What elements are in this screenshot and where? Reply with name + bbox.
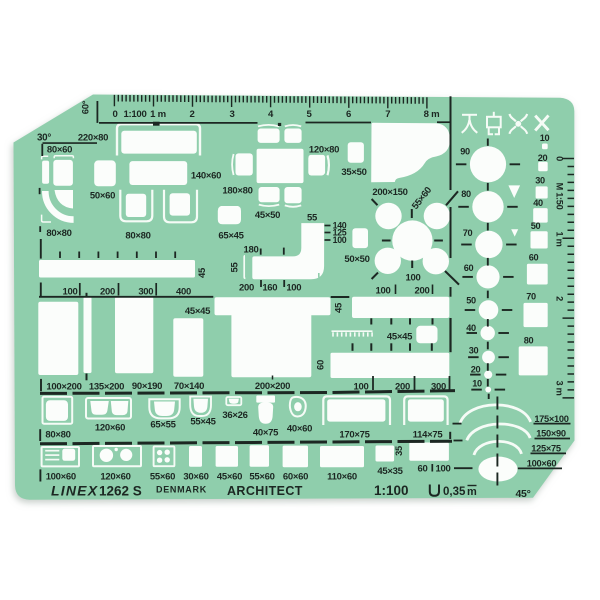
svg-text:0: 0: [555, 156, 565, 161]
svg-text:120×80: 120×80: [309, 145, 339, 156]
svg-text:55: 55: [307, 213, 318, 224]
svg-text:40: 40: [466, 323, 476, 333]
svg-text:0: 0: [112, 109, 117, 120]
svg-text:0,35: 0,35: [443, 486, 466, 498]
svg-text:50: 50: [466, 296, 476, 306]
svg-text:70: 70: [526, 292, 536, 302]
svg-text:200×150: 200×150: [372, 187, 407, 198]
svg-text:200: 200: [415, 285, 430, 296]
svg-text:140×60: 140×60: [191, 171, 221, 182]
svg-text:65×55: 65×55: [150, 420, 176, 431]
svg-text:1:100: 1:100: [123, 109, 146, 120]
svg-text:30: 30: [469, 346, 479, 356]
svg-text:30°: 30°: [37, 133, 51, 144]
svg-text:60: 60: [529, 253, 539, 263]
svg-text:60: 60: [418, 464, 428, 475]
svg-text:3: 3: [229, 109, 234, 120]
svg-text:45×35: 45×35: [377, 466, 403, 477]
svg-text:175×100: 175×100: [534, 414, 568, 424]
svg-text:35×50: 35×50: [341, 167, 366, 178]
svg-text:65×45: 65×45: [218, 231, 244, 242]
svg-text:45×45: 45×45: [387, 332, 413, 343]
svg-text:80×60: 80×60: [47, 145, 72, 156]
svg-text:90: 90: [460, 146, 470, 156]
svg-text:45×50: 45×50: [255, 210, 280, 221]
svg-text:2: 2: [555, 296, 565, 301]
svg-text:120×60: 120×60: [95, 423, 125, 434]
svg-text:1 m: 1 m: [150, 109, 166, 120]
svg-text:100×200: 100×200: [46, 382, 81, 393]
svg-text:55×60: 55×60: [249, 472, 274, 483]
svg-text:6: 6: [346, 109, 351, 120]
svg-text:60×60: 60×60: [283, 472, 308, 483]
svg-text:50×50: 50×50: [344, 254, 369, 265]
svg-text:100: 100: [376, 285, 391, 296]
svg-text:36×26: 36×26: [222, 410, 247, 421]
svg-text:M 1:50: M 1:50: [555, 183, 565, 210]
svg-text:55×45: 55×45: [190, 417, 216, 428]
svg-text:45: 45: [334, 302, 345, 313]
svg-text:80×80: 80×80: [45, 430, 70, 441]
svg-text:45: 45: [197, 267, 208, 278]
svg-text:40×75: 40×75: [253, 428, 279, 439]
svg-text:1:100: 1:100: [374, 483, 409, 498]
svg-text:125×75: 125×75: [531, 444, 561, 454]
svg-text:120×60: 120×60: [100, 472, 130, 483]
svg-text:70: 70: [463, 228, 473, 238]
svg-text:170×75: 170×75: [339, 429, 370, 440]
svg-text:10: 10: [540, 133, 550, 143]
svg-text:35: 35: [394, 446, 404, 456]
svg-text:55: 55: [230, 262, 241, 273]
svg-text:200: 200: [239, 283, 254, 294]
svg-text:40: 40: [533, 198, 543, 208]
svg-text:LINEX: LINEX: [51, 483, 99, 499]
svg-text:135×200: 135×200: [89, 382, 124, 393]
svg-text:220×80: 220×80: [78, 133, 108, 144]
svg-text:114×75: 114×75: [413, 429, 444, 440]
svg-text:2: 2: [189, 109, 194, 120]
svg-text:60°: 60°: [81, 100, 92, 114]
svg-text:70×140: 70×140: [174, 381, 204, 392]
svg-text:10: 10: [472, 379, 482, 389]
svg-text:ARCHITECT: ARCHITECT: [227, 484, 303, 498]
svg-text:3 m: 3 m: [555, 381, 565, 396]
svg-text:150×90: 150×90: [536, 429, 566, 439]
svg-text:100: 100: [406, 273, 421, 284]
svg-text:110×60: 110×60: [327, 472, 357, 483]
svg-text:180: 180: [244, 245, 259, 256]
svg-text:80×80: 80×80: [125, 231, 150, 242]
svg-text:1 m: 1 m: [555, 232, 565, 247]
svg-text:80: 80: [524, 336, 534, 346]
svg-text:80×80: 80×80: [46, 228, 71, 239]
svg-text:100: 100: [286, 283, 301, 294]
svg-text:7: 7: [385, 109, 390, 120]
svg-text:180×80: 180×80: [222, 186, 252, 197]
svg-text:m: m: [467, 486, 477, 498]
svg-text:45×60: 45×60: [217, 472, 242, 483]
svg-text:20: 20: [471, 365, 481, 375]
svg-text:30×60: 30×60: [183, 472, 208, 483]
svg-text:8 m: 8 m: [424, 109, 440, 120]
svg-text:1262 S: 1262 S: [99, 484, 142, 499]
svg-text:100×60: 100×60: [527, 459, 557, 469]
svg-text:DENMARK: DENMARK: [156, 485, 207, 495]
svg-text:90×190: 90×190: [132, 381, 162, 392]
svg-text:50: 50: [531, 221, 541, 231]
svg-text:50×60: 50×60: [90, 191, 115, 202]
svg-text:80: 80: [461, 189, 471, 199]
svg-text:55×60: 55×60: [150, 472, 175, 483]
svg-text:160: 160: [262, 283, 277, 294]
svg-text:45°: 45°: [516, 488, 531, 500]
svg-text:40×60: 40×60: [287, 424, 312, 435]
svg-text:100: 100: [333, 235, 347, 245]
svg-text:60: 60: [316, 360, 327, 370]
svg-text:100×60: 100×60: [46, 472, 76, 483]
svg-text:45×45: 45×45: [185, 306, 211, 317]
svg-text:100: 100: [436, 464, 451, 475]
svg-text:200×200: 200×200: [255, 381, 290, 392]
svg-text:20: 20: [538, 153, 548, 163]
svg-text:30: 30: [535, 176, 545, 186]
svg-text:60: 60: [464, 263, 474, 273]
